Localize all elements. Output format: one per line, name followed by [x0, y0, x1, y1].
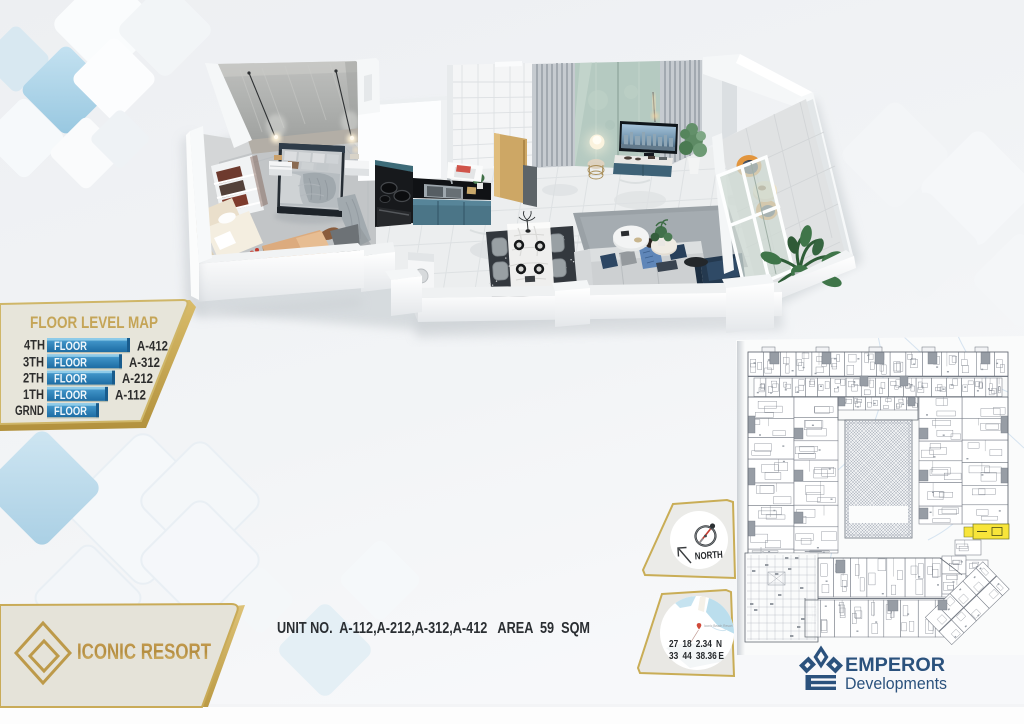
svg-text:EMPEROR: EMPEROR — [845, 655, 945, 676]
svg-text:FLOOR: FLOOR — [54, 390, 88, 402]
svg-text:GRND: GRND — [15, 403, 44, 418]
svg-text:4TH: 4TH — [24, 338, 45, 353]
svg-text:1TH: 1TH — [23, 387, 44, 402]
svg-text:FLOOR: FLOOR — [54, 341, 88, 353]
svg-text:Iconic Beach Resort: Iconic Beach Resort — [704, 624, 733, 628]
svg-text:Developments: Developments — [845, 675, 947, 693]
svg-text:FLOOR: FLOOR — [54, 357, 88, 369]
svg-text:NORTH: NORTH — [694, 550, 723, 563]
svg-text:33 44 38.36 E: 33 44 38.36 E — [669, 651, 724, 662]
svg-text:FLOOR: FLOOR — [54, 374, 88, 386]
svg-text:A-212: A-212 — [122, 371, 153, 386]
svg-text:27 18 2.34 N: 27 18 2.34 N — [669, 639, 722, 650]
svg-text:FLOOR: FLOOR — [54, 406, 88, 418]
svg-text:FLOOR LEVEL MAP: FLOOR LEVEL MAP — [30, 313, 158, 332]
svg-text:ICONIC RESORT: ICONIC RESORT — [77, 639, 211, 664]
svg-text:A-112: A-112 — [115, 387, 146, 402]
svg-text:A-412: A-412 — [137, 339, 168, 354]
svg-text:2TH: 2TH — [23, 371, 44, 386]
svg-text:3TH: 3TH — [23, 354, 44, 369]
svg-text:A-312: A-312 — [129, 355, 160, 370]
svg-text:UNIT NO. A-112,A-212,A-312,A-: UNIT NO. A-112,A-212,A-312,A-412 AREA 59… — [277, 620, 590, 637]
